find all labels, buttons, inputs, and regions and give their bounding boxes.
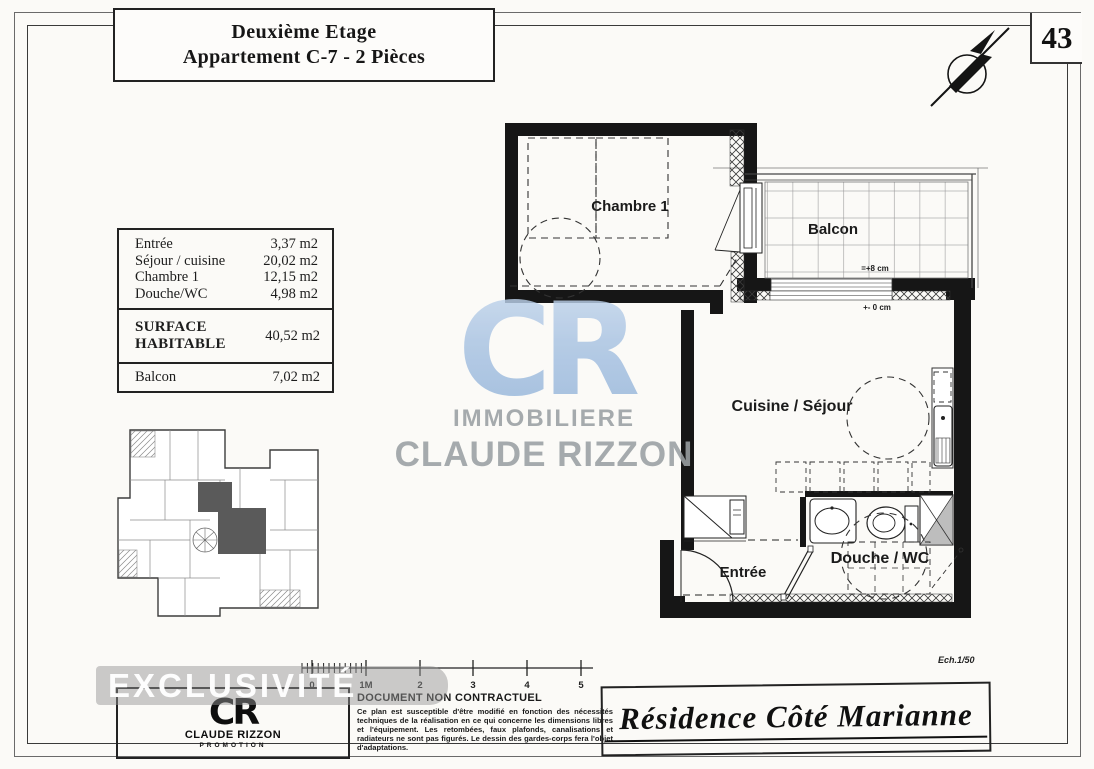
bedroom-label: Chambre 1 bbox=[591, 198, 669, 215]
bath-label: Douche / WC bbox=[831, 550, 930, 567]
surface-label: SURFACE HABITABLE bbox=[135, 319, 226, 353]
balcony-door bbox=[715, 183, 762, 253]
room-area: 3,37 m2 bbox=[270, 236, 320, 253]
bedroom-furniture bbox=[510, 138, 739, 298]
scale-tick-label: 4 bbox=[524, 680, 530, 691]
highlighted-unit bbox=[218, 508, 266, 554]
room-label: Douche/WC bbox=[135, 286, 207, 303]
agency-logo-subtitle: PROMOTION bbox=[199, 742, 266, 749]
entry-label: Entrée bbox=[720, 564, 767, 581]
table-row: Entrée 3,37 m2 bbox=[135, 236, 320, 253]
area-table-rooms: Entrée 3,37 m2 Séjour / cuisine 20,02 m2… bbox=[119, 230, 332, 310]
title-block: Deuxième Etage Appartement C-7 - 2 Pièce… bbox=[113, 8, 495, 82]
scale-note: Ech.1/50 bbox=[938, 655, 975, 665]
apartment-title: Appartement C-7 - 2 Pièces bbox=[183, 46, 425, 69]
balcony-row: Balcon 7,02 m2 bbox=[119, 364, 332, 391]
table-row: Chambre 1 12,15 m2 bbox=[135, 269, 320, 286]
page-number: 43 bbox=[1030, 13, 1082, 64]
table-row: Séjour / cuisine 20,02 m2 bbox=[135, 253, 320, 270]
room-label: Chambre 1 bbox=[135, 269, 199, 286]
balcony-label: Balcon bbox=[808, 221, 858, 238]
room-label: Séjour / cuisine bbox=[135, 253, 225, 270]
room-area: 12,15 m2 bbox=[263, 269, 320, 286]
key-plan bbox=[110, 420, 325, 625]
disclaimer-body: Ce plan est susceptible d'être modifié e… bbox=[357, 707, 613, 753]
bathroom-fixtures bbox=[810, 495, 963, 599]
balcony-area: 7,02 m2 bbox=[272, 369, 320, 386]
balcony-label: Balcon bbox=[135, 369, 176, 386]
surface-area: 40,52 m2 bbox=[265, 328, 320, 345]
ground-level-note: +- 0 cm bbox=[863, 303, 891, 312]
table-row: Douche/WC 4,98 m2 bbox=[135, 286, 320, 303]
highlighted-unit bbox=[198, 482, 232, 512]
room-area: 20,02 m2 bbox=[263, 253, 320, 270]
area-table: Entrée 3,37 m2 Séjour / cuisine 20,02 m2… bbox=[117, 228, 334, 393]
exclusivity-label: EXCLUSIVITÉ bbox=[96, 667, 357, 705]
scale-tick-label: 3 bbox=[470, 680, 475, 691]
project-name-box: Résidence Côté Marianne bbox=[601, 682, 992, 757]
living-label: Cuisine / Séjour bbox=[732, 398, 853, 415]
bathroom-door bbox=[781, 546, 813, 600]
scale-tick-label: 5 bbox=[578, 680, 584, 691]
kitchen-fixtures bbox=[776, 368, 953, 492]
living-window bbox=[770, 279, 892, 300]
floor-plan: Chambre 1 Balcon Cuisine / Séjour Douche… bbox=[488, 110, 993, 625]
surface-habitable-row: SURFACE HABITABLE 40,52 m2 bbox=[119, 310, 332, 364]
room-label: Entrée bbox=[135, 236, 173, 253]
document-page: Deuxième Etage Appartement C-7 - 2 Pièce… bbox=[0, 0, 1094, 769]
agency-logo-name: CLAUDE RIZZON bbox=[185, 729, 281, 741]
north-arrow-icon bbox=[923, 22, 1015, 114]
entry-closet bbox=[684, 496, 746, 541]
project-name: Résidence Côté Marianne bbox=[605, 696, 987, 742]
room-area: 4,98 m2 bbox=[270, 286, 320, 303]
floor-title: Deuxième Etage bbox=[231, 21, 376, 44]
balcony-level-note: =+8 cm bbox=[861, 264, 889, 273]
exclusivity-banner: EXCLUSIVITÉ bbox=[96, 666, 448, 705]
